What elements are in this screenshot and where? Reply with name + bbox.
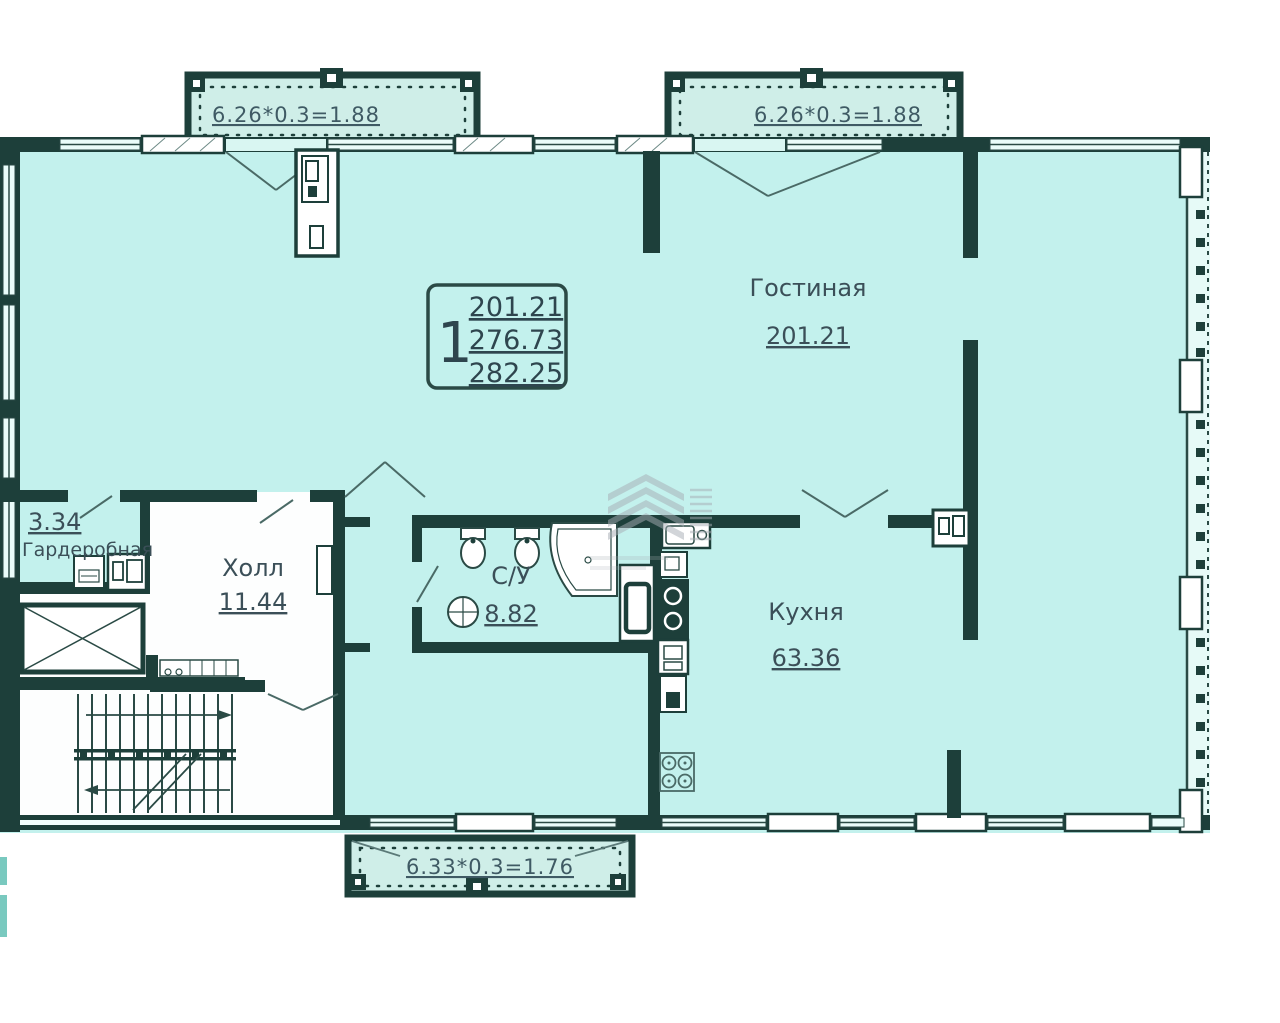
unit-area-3: 282.25	[469, 358, 563, 389]
living-room-label: Гостиная	[750, 274, 867, 302]
hall-room-area: 11.44	[219, 588, 288, 616]
shaft-icon	[933, 510, 969, 546]
shower-tray-icon	[620, 565, 654, 641]
balcony-bottom-dimension: 6.33*0.3=1.76	[406, 855, 574, 879]
elevator-icon	[22, 605, 143, 672]
oven-icon	[658, 640, 688, 674]
door-leaf	[317, 546, 332, 594]
balcony-top-right-dimension: 6.26*0.3=1.88	[754, 103, 922, 127]
balcony-top-left-dimension: 6.26*0.3=1.88	[212, 103, 380, 127]
hall-label: Холл	[222, 554, 284, 582]
toilet-icon	[461, 528, 485, 568]
floor-plan-page: 1 201.21 276.73 282.25 Гостиная 201.21 К…	[0, 0, 1280, 1023]
living-room-area: 201.21	[766, 322, 850, 350]
kitchen-label: Кухня	[768, 598, 844, 626]
wardrobe-area: 3.34	[28, 508, 81, 536]
kitchen-area: 63.36	[772, 644, 841, 672]
bathroom-area: 8.82	[484, 600, 537, 628]
vent-shaft-icon	[296, 150, 338, 256]
floor-plan-svg: 1 201.21 276.73 282.25 Гостиная 201.21 К…	[0, 0, 1280, 1023]
pram-ramp-icon	[160, 660, 238, 676]
bathroom-label: С/У	[491, 562, 531, 590]
cabinet-icon	[660, 676, 686, 712]
washbasin-icon	[448, 597, 478, 627]
unit-number: 1	[437, 311, 473, 376]
unit-area-1: 201.21	[469, 292, 563, 323]
counter-icon	[660, 552, 687, 577]
stove-icon	[658, 580, 688, 638]
wardrobe-label: Гардеробная	[22, 539, 153, 561]
unit-area-2: 276.73	[469, 325, 563, 356]
